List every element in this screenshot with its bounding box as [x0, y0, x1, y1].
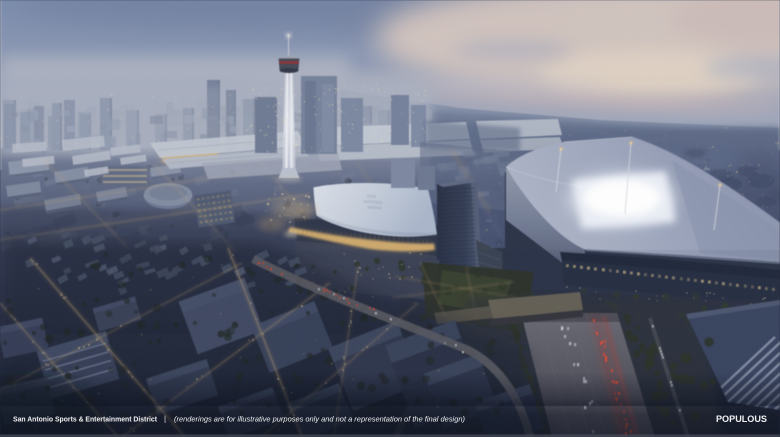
svg-text:(renderings are for illustrati: (renderings are for illustrative purpose…	[174, 415, 465, 424]
svg-text:|: |	[164, 415, 166, 424]
svg-text:POPULOUS: POPULOUS	[716, 414, 767, 424]
svg-text:San Antonio Sports & Entertain: San Antonio Sports & Entertainment Distr…	[13, 415, 157, 424]
